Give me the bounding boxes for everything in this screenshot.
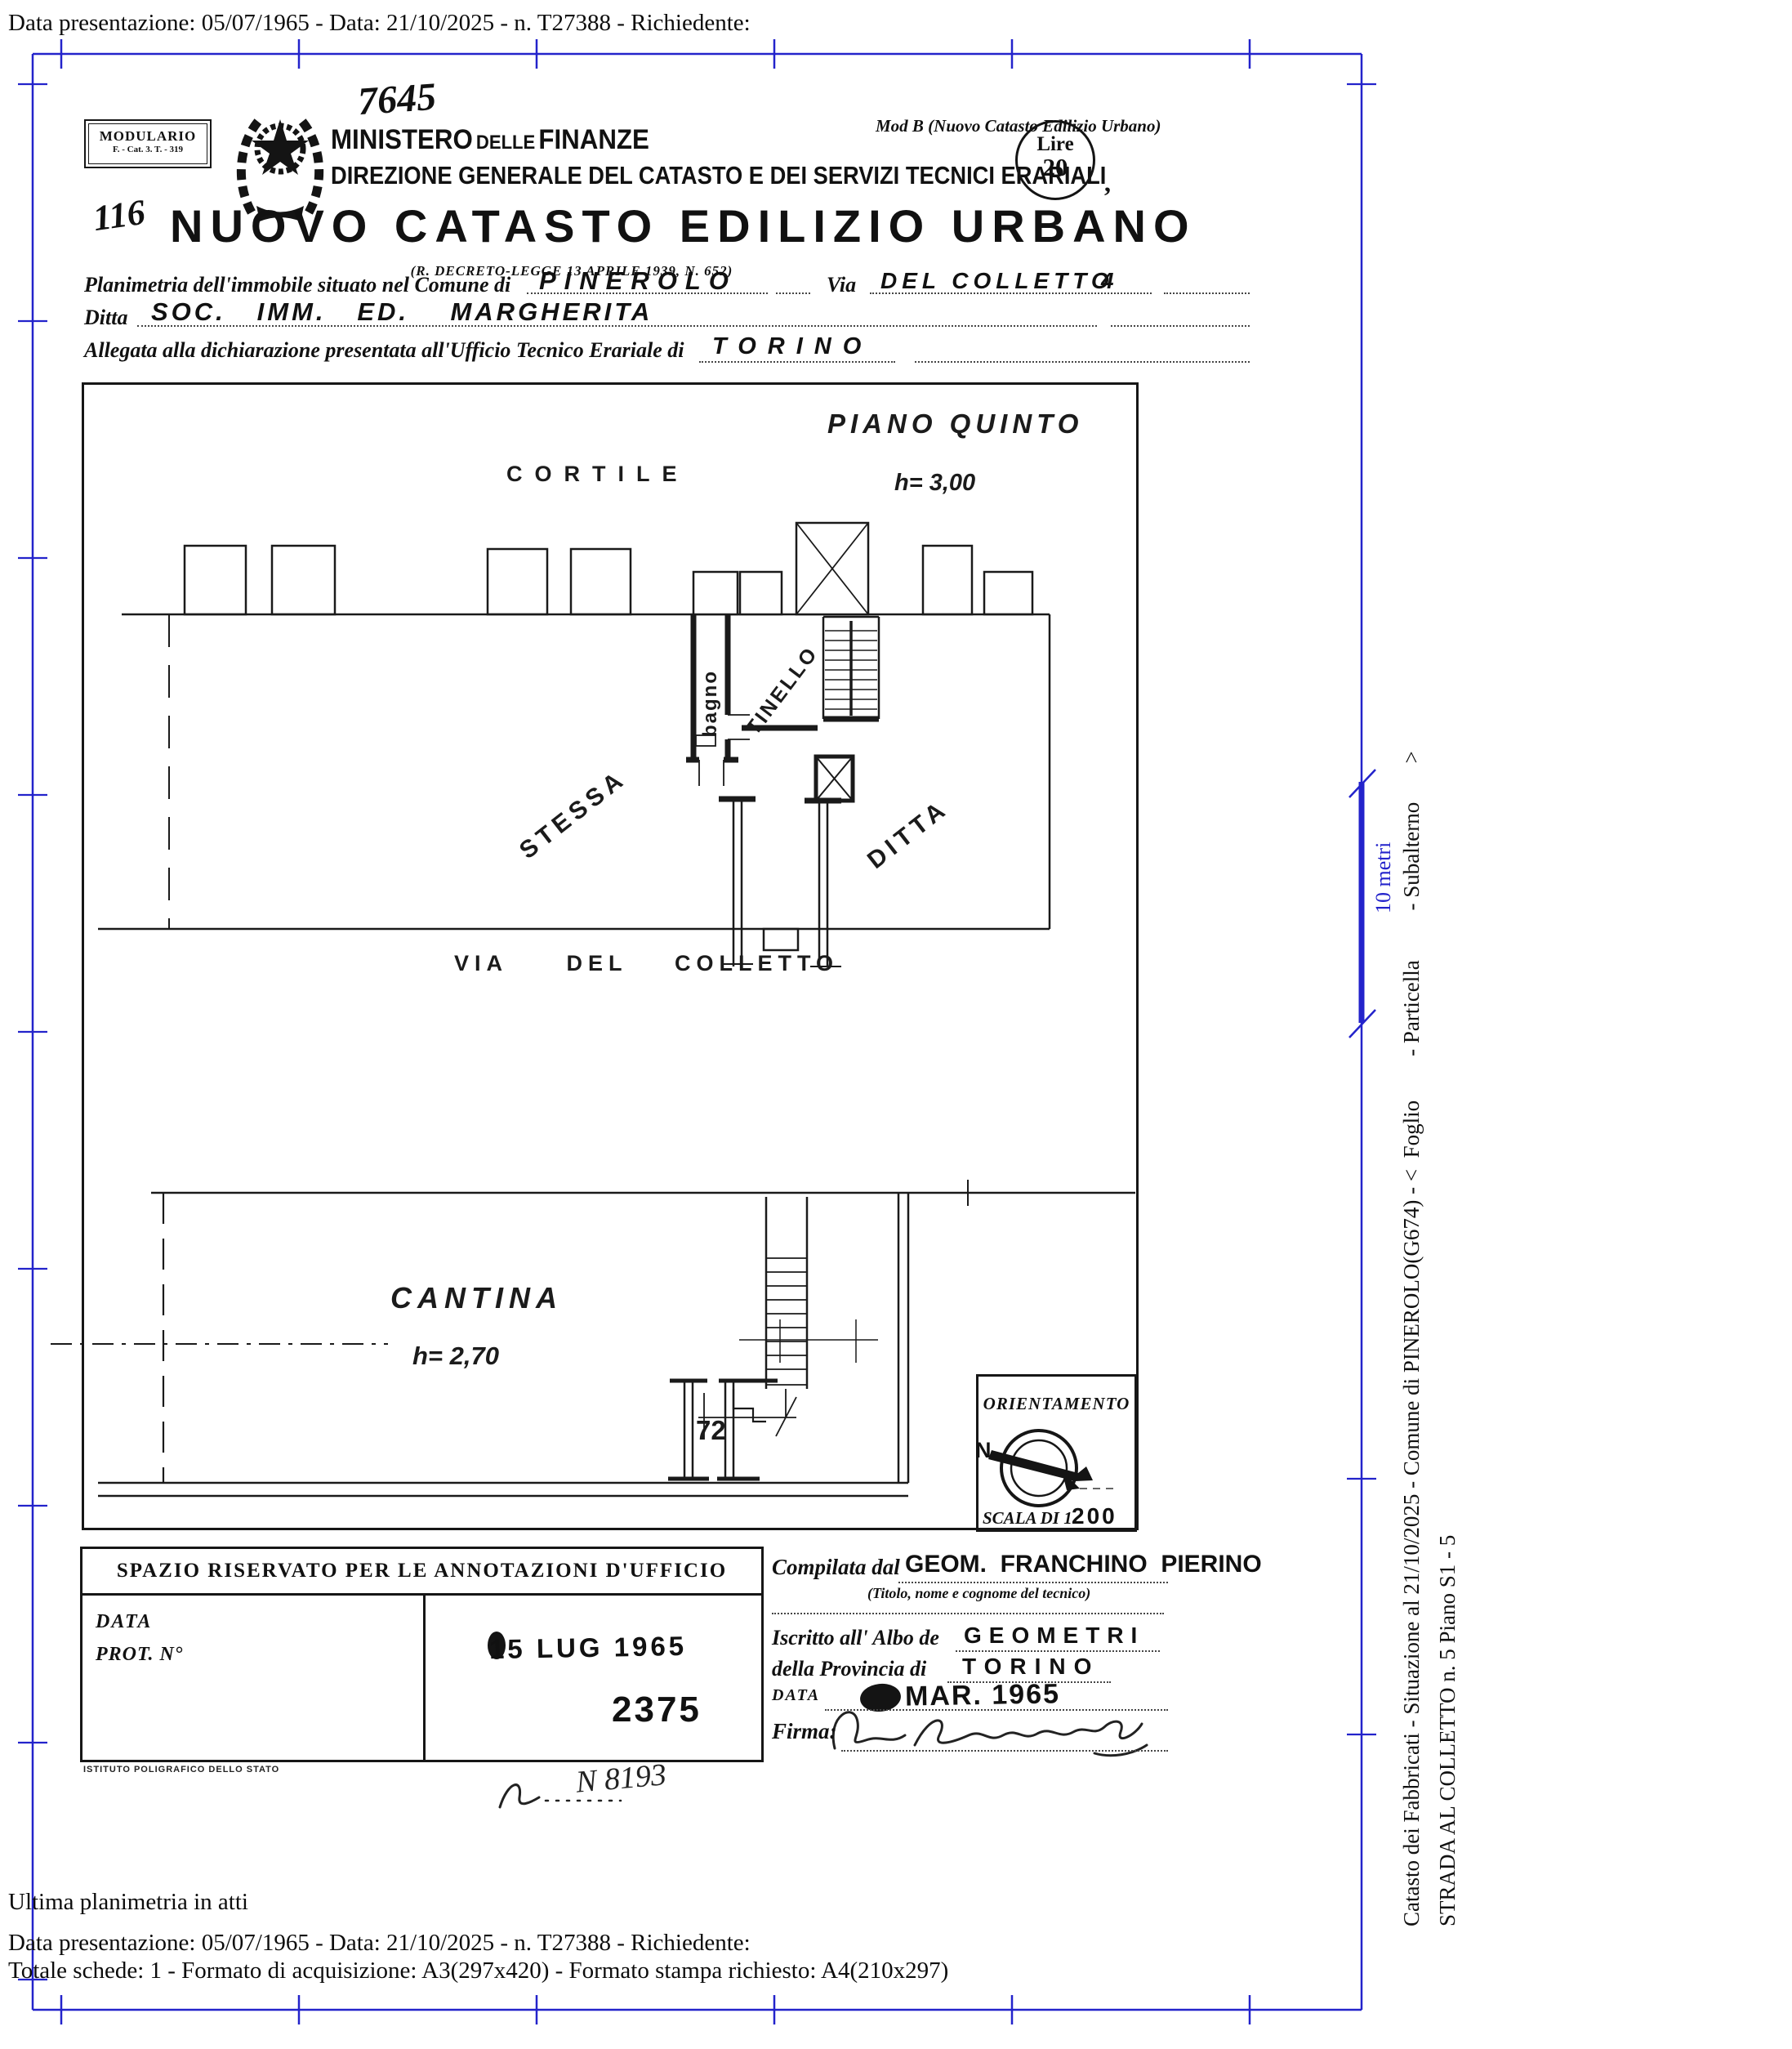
compiler-name: GEOM. FRANCHINO PIERINO <box>905 1551 1262 1578</box>
form-row2-label: Ditta <box>84 306 127 330</box>
provincia-value: TORINO <box>962 1654 1099 1680</box>
label-cantina: CANTINA <box>390 1281 563 1315</box>
scale-value: 200 <box>1072 1503 1117 1529</box>
firma-label: Firma: <box>772 1719 837 1744</box>
annotations-box: SPAZIO RISERVATO PER LE ANNOTAZIONI D'UF… <box>80 1547 764 1762</box>
compiler-label: Compilata dal <box>772 1555 900 1580</box>
direzione-title: DIREZIONE GENERALE DEL CATASTO E DEI SER… <box>331 161 1106 190</box>
form-ditta-value: SOC. IMM. ED. MARGHERITA <box>151 297 653 327</box>
sidebar-situazione-line: Catasto dei Fabbricati - Situazione al 2… <box>1399 751 1424 1926</box>
annotations-data-label: DATA <box>96 1611 152 1633</box>
dotted-leader <box>956 1650 1160 1652</box>
dotted-leader <box>699 361 895 363</box>
document-title: NUOVO CATASTO EDILIZIO URBANO <box>170 199 1197 252</box>
compiler-caption: (Titolo, nome e cognome del tecnico) <box>867 1585 1090 1602</box>
orientation-title: ORIENTAMENTO <box>980 1394 1133 1414</box>
dotted-leader <box>527 292 768 294</box>
scale-prefix: SCALA DI 1. <box>983 1508 1077 1529</box>
footer-note: Ultima planimetria in atti <box>8 1889 248 1916</box>
ministry-title: MINISTERO DELLE FINANZE <box>331 124 649 156</box>
label-cellar-number: 72 <box>696 1415 726 1446</box>
dotted-leader <box>825 1709 1168 1711</box>
albo-label: Iscritto all' Albo de <box>772 1626 939 1650</box>
annotations-header: SPAZIO RISERVATO PER LE ANNOTAZIONI D'UF… <box>82 1549 761 1583</box>
dotted-leader <box>1111 325 1250 327</box>
label-bagno: bagno <box>699 670 722 737</box>
label-basement-height: h= 2,70 <box>412 1341 499 1371</box>
footer-format-line: Totale schede: 1 - Formato di acquisizio… <box>8 1957 948 1984</box>
label-piano-quinto: PIANO QUINTO <box>827 408 1083 440</box>
form-via-value: DEL COLLETTO <box>880 268 1114 294</box>
annotations-divider <box>423 1596 426 1760</box>
modulario-code: F. - Cat. 3. T. - 319 <box>89 145 207 154</box>
scanned-cadastral-document: { "meta": { "top_line": "Data presentazi… <box>0 0 1792 2049</box>
form-ufficio-value: TORINO <box>712 333 872 360</box>
form-civic-number: 4 <box>1101 268 1114 294</box>
sidebar-address-line: STRADA AL COLLETTO n. 5 Piano S1 - 5 <box>1435 1535 1460 1926</box>
signature-stroke <box>833 1712 1147 1756</box>
modulario-box: MODULARIO F. - Cat. 3. T. - 319 <box>84 119 212 168</box>
albo-value: GEOMETRI <box>964 1623 1144 1649</box>
label-street: VIA DEL COLLETTO <box>454 951 839 976</box>
dotted-leader <box>772 1613 1164 1614</box>
form-row3-label: Allegata alla dichiarazione presentata a… <box>84 338 684 363</box>
dotted-leader <box>841 1750 1168 1752</box>
viewer-header-line: Data presentazione: 05/07/1965 - Data: 2… <box>8 10 751 37</box>
label-cortile: CORTILE <box>506 462 689 487</box>
modulario-title: MODULARIO <box>89 128 207 145</box>
dotted-leader <box>137 325 1097 327</box>
after-stamp-mark: , <box>1104 167 1111 198</box>
dotted-leader <box>915 361 1250 363</box>
annotations-prot-label: PROT. N° <box>96 1644 183 1666</box>
scale-bar-label: 10 metri <box>1371 842 1396 913</box>
footer-presentation-line: Data presentazione: 05/07/1965 - Data: 2… <box>8 1930 751 1957</box>
handwritten-paraph: 116 <box>91 191 148 239</box>
provincia-label: della Provincia di <box>772 1657 926 1681</box>
label-floor-height: h= 3,00 <box>894 470 975 497</box>
north-label: N <box>975 1438 992 1463</box>
printer-imprint: ISTITUTO POLIGRAFICO DELLO STATO <box>83 1765 279 1774</box>
protocol-number-stamp: 2375 <box>612 1690 702 1730</box>
form-comune-value: PINEROLO <box>539 266 737 296</box>
handwritten-number: 7645 <box>356 74 438 125</box>
compiler-date-label: DATA <box>772 1686 820 1705</box>
dotted-leader <box>776 292 810 294</box>
lire-value: 20 <box>1018 154 1093 180</box>
form-via-label: Via <box>827 273 856 297</box>
dotted-leader <box>898 1582 1168 1583</box>
lire-stamp: Lire 20 <box>1015 120 1095 200</box>
dotted-leader <box>1164 292 1250 294</box>
compiler-date-stamp: MAR. 1965 <box>905 1678 1061 1712</box>
lire-label: Lire <box>1018 134 1093 154</box>
dotted-leader <box>870 292 1152 294</box>
form-row1-label: Planimetria dell'immobile situato nel Co… <box>84 273 510 297</box>
date-stamp: 15 LUG 1965 <box>489 1631 688 1665</box>
